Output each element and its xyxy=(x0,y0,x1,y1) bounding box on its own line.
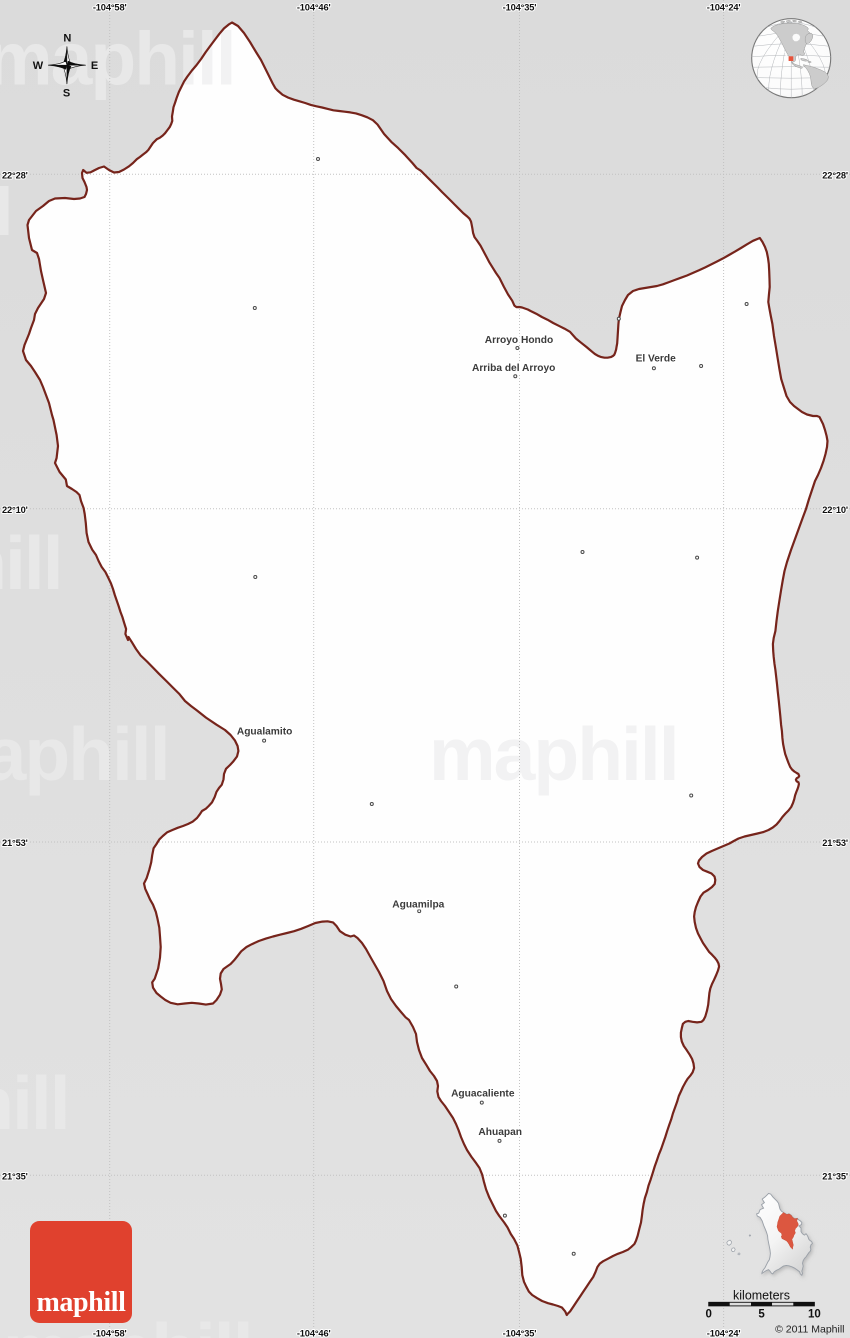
svg-text:Agualamito: Agualamito xyxy=(237,727,292,738)
svg-text:Ahuapan: Ahuapan xyxy=(478,1127,522,1138)
svg-text:-104°46': -104°46' xyxy=(297,1328,331,1338)
svg-text:© 2011 Maphill: © 2011 Maphill xyxy=(775,1324,844,1336)
svg-text:maphill: maphill xyxy=(0,712,169,796)
svg-text:22°28': 22°28' xyxy=(2,170,28,180)
svg-text:-104°46': -104°46' xyxy=(297,2,331,12)
svg-text:W: W xyxy=(33,60,44,72)
svg-text:E: E xyxy=(91,60,98,72)
svg-text:21°53': 21°53' xyxy=(2,838,28,848)
svg-text:Aguacaliente: Aguacaliente xyxy=(451,1089,515,1100)
svg-text:-104°58': -104°58' xyxy=(93,1328,127,1338)
svg-text:5: 5 xyxy=(758,1309,765,1321)
svg-text:-104°24': -104°24' xyxy=(707,2,741,12)
svg-text:maphill: maphill xyxy=(0,521,62,605)
svg-text:-104°35': -104°35' xyxy=(503,2,537,12)
svg-text:kilometers: kilometers xyxy=(733,1289,790,1303)
svg-text:22°10': 22°10' xyxy=(2,505,28,515)
svg-text:Arriba del Arroyo: Arriba del Arroyo xyxy=(472,363,555,374)
svg-text:N: N xyxy=(63,33,71,45)
svg-text:-104°35': -104°35' xyxy=(503,1328,537,1338)
svg-text:Aguamilpa: Aguamilpa xyxy=(392,900,444,911)
svg-text:maphill: maphill xyxy=(0,1061,69,1145)
svg-text:22°10': 22°10' xyxy=(822,505,848,515)
svg-text:21°53': 21°53' xyxy=(822,838,848,848)
svg-text:10: 10 xyxy=(808,1309,821,1321)
svg-text:El Verde: El Verde xyxy=(636,354,677,365)
svg-text:maphill: maphill xyxy=(36,1287,126,1318)
svg-text:22°28': 22°28' xyxy=(822,170,848,180)
svg-text:-104°24': -104°24' xyxy=(707,1328,741,1338)
svg-text:Arroyo Hondo: Arroyo Hondo xyxy=(485,335,553,346)
svg-text:maphill: maphill xyxy=(429,712,678,796)
svg-text:-104°58': -104°58' xyxy=(93,2,127,12)
svg-text:0: 0 xyxy=(705,1309,711,1321)
svg-text:21°35': 21°35' xyxy=(2,1171,28,1181)
svg-text:21°35': 21°35' xyxy=(822,1171,848,1181)
svg-text:S: S xyxy=(63,88,70,100)
